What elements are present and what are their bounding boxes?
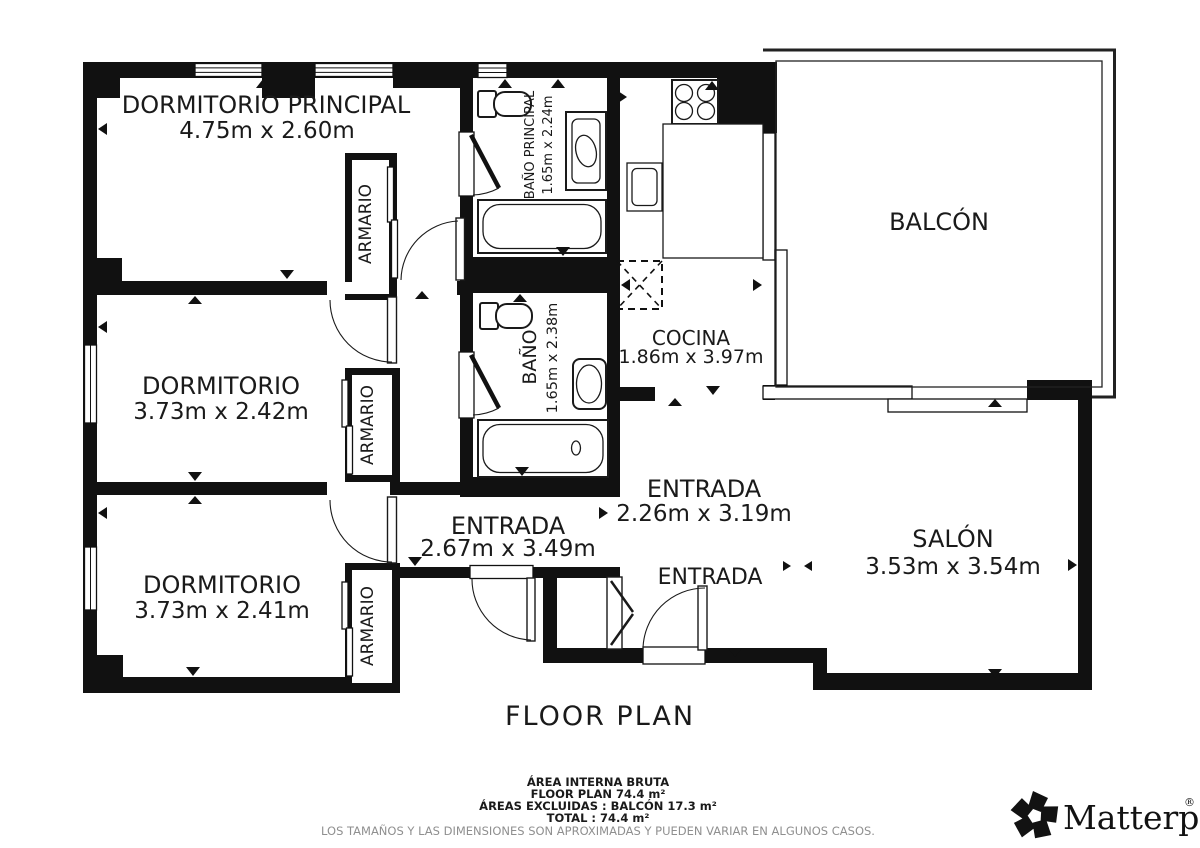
door-master-suite (398, 218, 465, 294)
floor-plan-drawing: DORMITORIO PRINCIPAL 4.75m x 2.60m DORMI… (0, 0, 1200, 848)
page-title: FLOOR PLAN (505, 701, 695, 732)
label-armario-3: ARMARIO (358, 586, 378, 666)
kitchen-counter (663, 124, 763, 258)
dims-dormitorio-3: 3.73m x 2.41m (134, 598, 309, 624)
sink-icon-bath2 (573, 359, 606, 409)
dims-dormitorio-principal: 4.75m x 2.60m (179, 118, 354, 144)
dims-bano: 1.65m x 2.38m (545, 303, 561, 414)
toilet-icon-bath2 (480, 303, 532, 329)
label-entrada-main: ENTRADA (647, 475, 762, 503)
bathtub-icon-bath2 (478, 420, 608, 477)
window-left-1 (85, 345, 97, 423)
registered-mark: ® (1184, 796, 1195, 809)
branding: Matterport ® (1009, 791, 1200, 844)
washer-icon (566, 112, 606, 190)
balcony-sliding-door (763, 386, 1027, 412)
door-hall (470, 566, 535, 642)
dims-salon: 3.53m x 3.54m (865, 554, 1040, 580)
door-master-bathroom (459, 132, 499, 196)
window-bathroom (478, 64, 507, 78)
balcony-sliding-window (763, 133, 787, 385)
matterport-logo-icon (1009, 791, 1063, 844)
door-bathroom-2 (459, 352, 499, 418)
kitchen-sink-icon (627, 163, 662, 211)
window-left-2 (85, 547, 97, 610)
label-dormitorio-2: DORMITORIO (142, 372, 300, 400)
label-dormitorio-principal: DORMITORIO PRINCIPAL (122, 91, 411, 119)
bathtub-icon-master (478, 200, 606, 253)
dims-entrada-hall: 2.67m x 3.49m (420, 536, 595, 562)
label-dormitorio-3: DORMITORIO (143, 571, 301, 599)
label-salon: SALÓN (912, 523, 993, 553)
window-top-1 (195, 64, 262, 77)
door-main-entrance (643, 586, 707, 664)
label-bano-principal: BAÑO PRINCIPAL (522, 90, 538, 199)
summary-line-4: TOTAL : 74.4 m² (547, 811, 650, 825)
dims-entrada-main: 2.26m x 3.19m (616, 501, 791, 527)
label-entrada-door: ENTRADA (658, 565, 763, 590)
floor-plan-page: DORMITORIO PRINCIPAL 4.75m x 2.60m DORMI… (0, 0, 1200, 848)
dims-dormitorio-2: 3.73m x 2.42m (133, 399, 308, 425)
label-armario-1: ARMARIO (356, 184, 376, 264)
label-armario-2: ARMARIO (358, 385, 378, 465)
disclaimer: LOS TAMAÑOS Y LAS DIMENSIONES SON APROXI… (321, 823, 875, 838)
window-top-2 (315, 64, 393, 77)
matterport-wordmark: Matterport (1063, 798, 1200, 837)
dims-bano-principal: 1.65m x 2.24m (541, 95, 556, 194)
dims-cocina: 1.86m x 3.97m (619, 346, 764, 368)
door-bedroom-3 (329, 483, 397, 563)
footer: FLOOR PLAN ÁREA INTERNA BRUTA FLOOR PLAN… (321, 701, 875, 838)
door-vestibule (607, 577, 633, 649)
label-balcon: BALCÓN (889, 206, 989, 236)
label-bano: BAÑO (518, 329, 541, 384)
